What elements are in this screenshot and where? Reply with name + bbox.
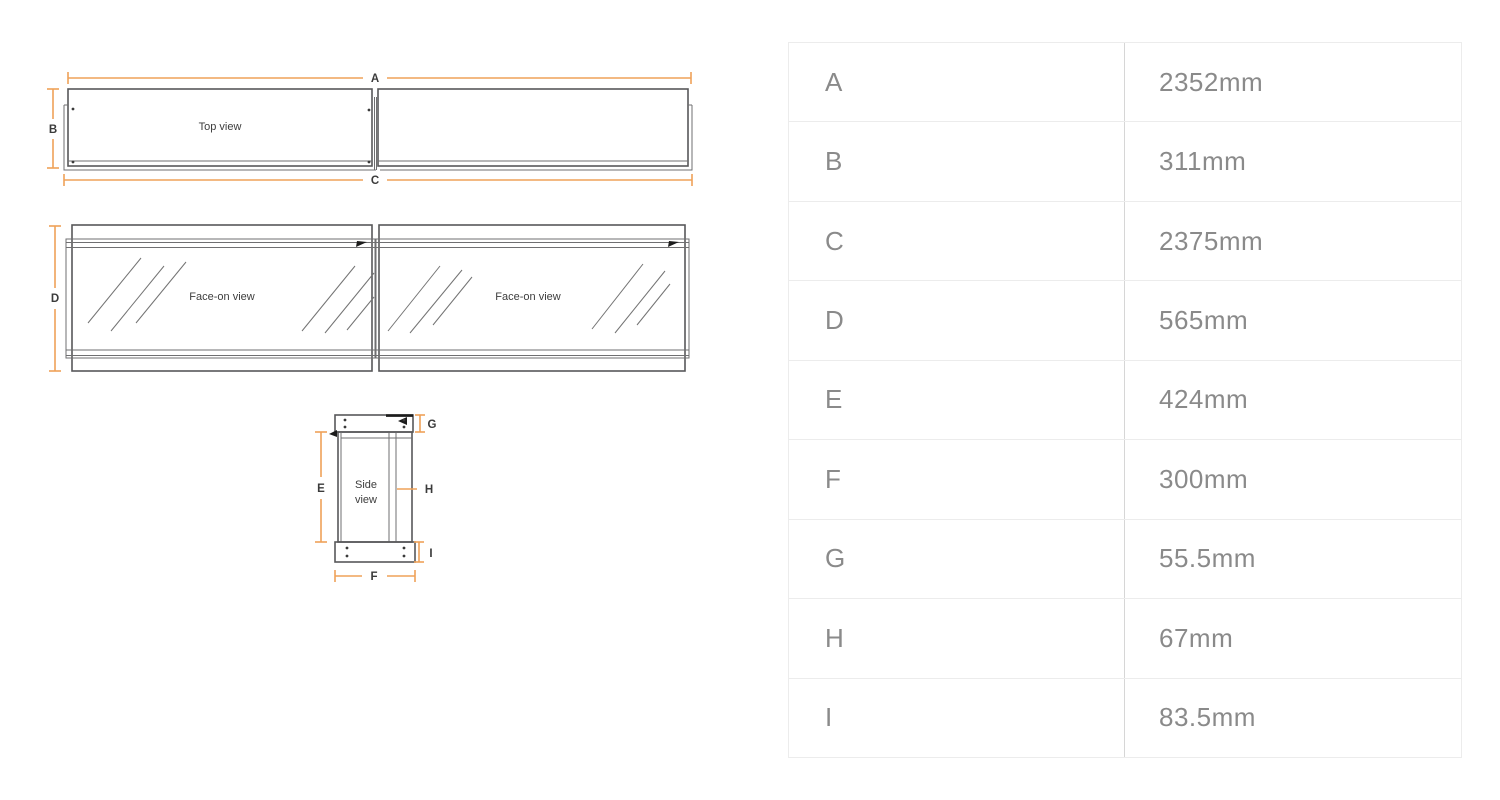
dimension-label-d: D (51, 293, 59, 305)
top-view-right-box (378, 89, 688, 166)
dimension-label-h: H (425, 484, 433, 496)
top-view-label: Top view (199, 121, 242, 133)
product-dimensions-page: A Top view (0, 0, 1500, 800)
dimension-line-a: A (68, 72, 691, 85)
row-c-value: 2375mm (1125, 202, 1461, 280)
side-top-arrow-icon (398, 417, 407, 425)
row-i-label: I (789, 679, 1125, 757)
row-e-label: E (789, 361, 1125, 439)
row-d-label: D (789, 281, 1125, 359)
row-c-label: C (789, 202, 1125, 280)
side-view-bottom-strip (335, 542, 415, 562)
dimension-line-f: F (335, 570, 415, 583)
dimension-label-c: C (371, 175, 379, 187)
dimension-line-b: B (47, 89, 59, 168)
face-on-view-left-label: Face-on view (189, 291, 254, 303)
face-on-view-drawing: Face-on view Face-on view D (49, 225, 689, 371)
dimension-label-e: E (317, 483, 325, 495)
dimension-label-f: F (370, 571, 377, 583)
table-row-h: H 67mm (789, 599, 1461, 678)
table-row-a: A 2352mm (789, 43, 1461, 122)
dimension-label-g: G (428, 419, 437, 431)
table-row-g: G 55.5mm (789, 520, 1461, 599)
face-on-view-right-label: Face-on view (495, 291, 560, 303)
table-row-b: B 311mm (789, 122, 1461, 201)
table-row-d: D 565mm (789, 281, 1461, 360)
dimension-label-b: B (49, 124, 57, 136)
dimension-line-e: E (315, 432, 327, 542)
table-row-f: F 300mm (789, 440, 1461, 519)
dimensions-table: A 2352mm B 311mm C 2375mm D 565mm E 424m… (788, 42, 1462, 758)
row-g-value: 55.5mm (1125, 520, 1461, 598)
row-a-label: A (789, 43, 1125, 121)
row-b-label: B (789, 122, 1125, 200)
dimension-line-g: G (415, 415, 437, 432)
row-i-value: 83.5mm (1125, 679, 1461, 757)
row-e-value: 424mm (1125, 361, 1461, 439)
side-view-label-line1: Side (355, 479, 377, 491)
row-f-value: 300mm (1125, 440, 1461, 518)
row-h-label: H (789, 599, 1125, 677)
dimension-label-i: I (429, 548, 432, 560)
side-view-drawing: Side view G E (315, 415, 437, 583)
row-g-label: G (789, 520, 1125, 598)
table-row-c: C 2375mm (789, 202, 1461, 281)
table-row-e: E 424mm (789, 361, 1461, 440)
dimension-label-a: A (371, 73, 379, 85)
row-d-value: 565mm (1125, 281, 1461, 359)
right-strip-arrow-icon (668, 241, 679, 247)
technical-drawing: A Top view (0, 0, 760, 800)
row-h-value: 67mm (1125, 599, 1461, 677)
dimension-line-c: C (64, 174, 692, 187)
left-strip-arrow-icon (356, 241, 367, 247)
top-view-drawing: A Top view (47, 72, 692, 187)
row-f-label: F (789, 440, 1125, 518)
side-body-arrow-icon (329, 430, 337, 437)
row-b-value: 311mm (1125, 122, 1461, 200)
dimension-line-d: D (49, 226, 61, 371)
side-view-label-line2: view (355, 494, 377, 506)
side-view-top-strip (335, 415, 413, 432)
dimension-line-h: H (397, 484, 433, 496)
dimension-line-i: I (414, 542, 433, 562)
table-row-i: I 83.5mm (789, 679, 1461, 757)
row-a-value: 2352mm (1125, 43, 1461, 121)
